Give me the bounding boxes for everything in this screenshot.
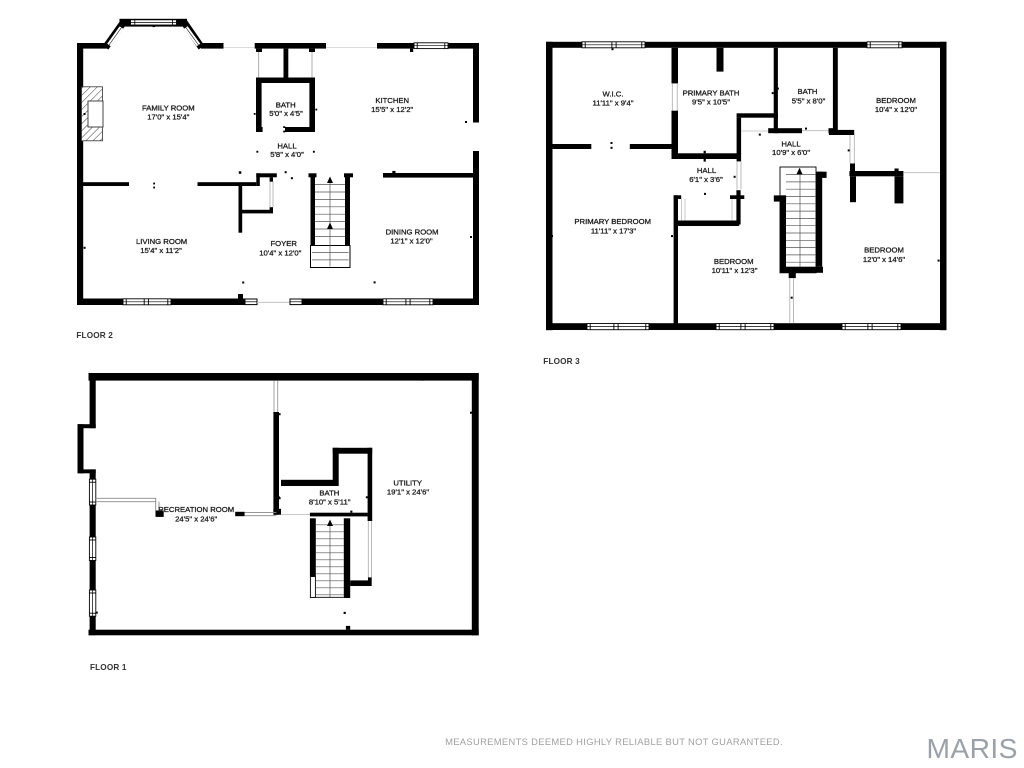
svg-text:BATH: BATH [276, 100, 296, 109]
svg-text:UTILITY: UTILITY [393, 479, 422, 488]
svg-text:LIVING ROOM: LIVING ROOM [136, 237, 187, 246]
svg-text:11'11" x 17'3": 11'11" x 17'3" [591, 227, 637, 236]
svg-text:KITCHEN: KITCHEN [375, 96, 409, 105]
svg-text:BATH: BATH [319, 489, 339, 498]
svg-text:15'4" x 11'2": 15'4" x 11'2" [140, 246, 182, 255]
svg-text:W.I.C.: W.I.C. [603, 90, 624, 99]
svg-text:BEDROOM: BEDROOM [864, 245, 904, 254]
svg-text:6'1" x 3'6": 6'1" x 3'6" [689, 175, 723, 184]
svg-text:DINING ROOM: DINING ROOM [386, 227, 439, 236]
svg-text:8'10" x 5'11": 8'10" x 5'11" [309, 497, 351, 506]
svg-text:FOYER: FOYER [270, 239, 297, 248]
svg-text:RECREATION ROOM: RECREATION ROOM [158, 505, 234, 514]
svg-text:9'5" x 10'5": 9'5" x 10'5" [692, 97, 730, 106]
svg-text:5'5" x 8'0": 5'5" x 8'0" [792, 97, 826, 106]
svg-text:HALL: HALL [697, 166, 717, 175]
svg-text:10'4" x 12'0": 10'4" x 12'0" [259, 248, 301, 257]
svg-text:FLOOR 1: FLOOR 1 [90, 663, 127, 672]
svg-text:24'5" x 24'6": 24'5" x 24'6" [175, 514, 217, 523]
svg-text:19'1" x 24'6": 19'1" x 24'6" [387, 488, 429, 497]
svg-text:MARIS: MARIS [927, 732, 1018, 764]
svg-text:5'8" x 4'0": 5'8" x 4'0" [270, 150, 304, 159]
svg-text:15'5" x 12'2": 15'5" x 12'2" [371, 105, 413, 114]
svg-text:10'9" x 6'0": 10'9" x 6'0" [772, 148, 810, 157]
svg-text:5'0" x 4'5": 5'0" x 4'5" [269, 109, 303, 118]
svg-text:FAMILY ROOM: FAMILY ROOM [142, 103, 195, 112]
svg-text:PRIMARY BEDROOM: PRIMARY BEDROOM [574, 217, 651, 226]
svg-text:17'0" x 15'4": 17'0" x 15'4" [147, 113, 189, 122]
svg-text:FLOOR 3: FLOOR 3 [543, 357, 580, 366]
svg-text:FLOOR 2: FLOOR 2 [76, 331, 113, 340]
svg-text:10'4" x 12'0": 10'4" x 12'0" [875, 105, 917, 114]
svg-text:HALL: HALL [277, 141, 297, 150]
svg-text:12'1" x 12'0": 12'1" x 12'0" [390, 237, 432, 246]
svg-text:10'11" x 12'3": 10'11" x 12'3" [712, 266, 758, 275]
svg-text:PRIMARY BATH: PRIMARY BATH [683, 89, 740, 98]
svg-text:BEDROOM: BEDROOM [714, 257, 754, 266]
svg-text:12'0" x 14'6": 12'0" x 14'6" [863, 255, 905, 264]
svg-text:11'11" x 9'4": 11'11" x 9'4" [592, 99, 633, 108]
svg-text:BEDROOM: BEDROOM [876, 96, 916, 105]
svg-text:MEASUREMENTS DEEMED HIGHLY REL: MEASUREMENTS DEEMED HIGHLY RELIABLE BUT … [445, 736, 783, 747]
svg-text:BATH: BATH [798, 87, 818, 96]
